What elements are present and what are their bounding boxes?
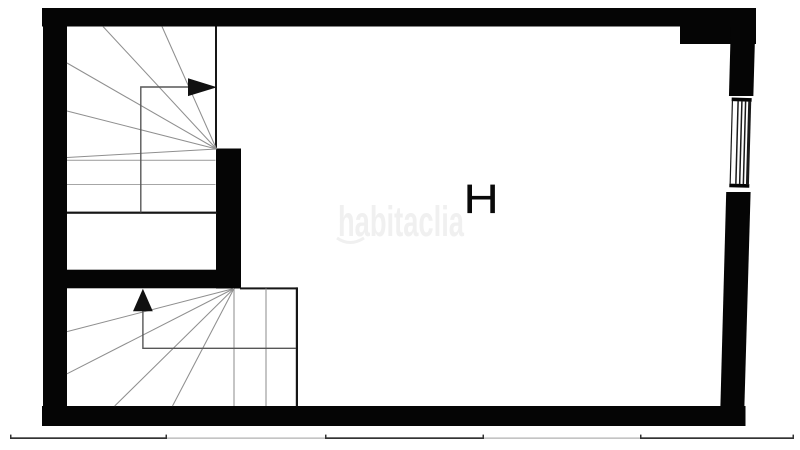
svg-text:habitaclia: habitaclia [338, 198, 465, 246]
